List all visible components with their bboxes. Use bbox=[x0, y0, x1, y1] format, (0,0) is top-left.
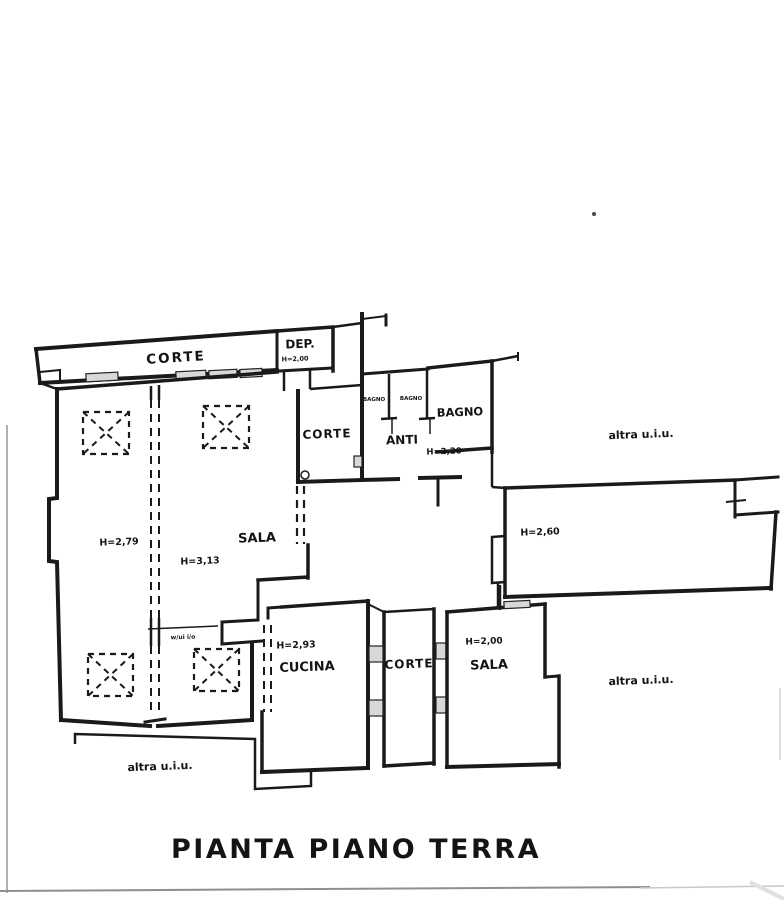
wall-segment bbox=[279, 368, 333, 371]
wall-steps bbox=[222, 580, 262, 644]
wall-segment bbox=[428, 361, 492, 368]
x-box-diagonals bbox=[203, 406, 249, 448]
partition-dashed bbox=[151, 646, 159, 716]
wall-segment bbox=[771, 512, 776, 589]
wall-segment bbox=[362, 369, 428, 374]
door-tick bbox=[726, 500, 746, 502]
notch-walls bbox=[735, 480, 778, 517]
anti-bagno-block: BAGNO BAGNO BAGNO ANTI H=2,20 bbox=[362, 334, 518, 505]
wall-segment bbox=[505, 588, 771, 597]
wall-segment bbox=[49, 389, 61, 720]
room-label-cucina: CUCINA bbox=[279, 659, 335, 676]
drain-symbol bbox=[301, 471, 309, 479]
room-label-corte-bottom: CORTE bbox=[384, 656, 434, 672]
x-box-diagonals bbox=[194, 649, 239, 691]
wall-steps bbox=[258, 545, 308, 580]
page-title: PIANTA PIANO TERRA bbox=[171, 834, 541, 865]
opening-dashed bbox=[297, 486, 304, 544]
height-label-right-room: H=2,60 bbox=[520, 526, 560, 538]
wall-segment bbox=[362, 479, 398, 480]
wall-segment bbox=[158, 720, 252, 726]
wall-segment bbox=[333, 323, 362, 327]
wall-segment bbox=[310, 385, 362, 389]
wall-segment bbox=[384, 763, 434, 766]
external-labels: altra u.i.u. altra u.i.u. bbox=[608, 427, 674, 688]
dashed-x-box bbox=[88, 654, 133, 696]
x-box-diagonals bbox=[83, 412, 129, 454]
window bbox=[354, 456, 362, 467]
yard-outline bbox=[75, 734, 311, 789]
scan-edge-bottom bbox=[0, 887, 650, 891]
wall-segment bbox=[368, 604, 384, 612]
wall-segment bbox=[362, 316, 386, 319]
height-label-dep: H=2,00 bbox=[281, 355, 309, 364]
scan-speck bbox=[592, 212, 596, 216]
height-label-sala-main: H=3,13 bbox=[180, 555, 220, 567]
wall-segment bbox=[282, 601, 368, 607]
partition-stub bbox=[151, 385, 159, 400]
room-label-bagno-small-right: BAGNO bbox=[400, 396, 423, 402]
room-label-sala-main: SALA bbox=[238, 530, 276, 546]
wall-segment bbox=[268, 607, 282, 618]
wall-segment bbox=[262, 768, 368, 772]
window bbox=[86, 372, 118, 382]
floorplan-drawing: CORTE DEP. H=2,00 bbox=[0, 0, 784, 900]
room-label-anti: ANTI bbox=[386, 432, 418, 447]
yard-bottom-left: altra u.i.u. bbox=[75, 734, 311, 789]
room-label-corte-mid: CORTE bbox=[302, 426, 352, 442]
x-box-frame bbox=[83, 412, 129, 454]
wall-segment bbox=[545, 676, 559, 677]
window bbox=[369, 646, 383, 662]
wall-segment bbox=[492, 487, 505, 488]
partition-dashed bbox=[151, 400, 159, 618]
wall-segment bbox=[36, 331, 277, 349]
wall-segment bbox=[298, 480, 362, 482]
room-label-corte-top: CORTE bbox=[146, 348, 206, 368]
x-box-frame bbox=[203, 406, 249, 448]
scan-corner-smudge bbox=[750, 882, 784, 899]
x-box-frame bbox=[194, 649, 239, 691]
x-box-frame bbox=[88, 654, 133, 696]
wall-segment bbox=[36, 349, 40, 383]
wall-segment bbox=[384, 609, 434, 612]
external-label-bottom-left: altra u.i.u. bbox=[127, 759, 193, 774]
height-label-cucina: H=2,93 bbox=[276, 639, 316, 651]
dep-room: DEP. H=2,00 bbox=[277, 327, 333, 391]
opening-dashed bbox=[264, 625, 271, 712]
external-label-right-bottom: altra u.i.u. bbox=[608, 673, 674, 688]
dashed-x-box bbox=[203, 406, 249, 448]
wall-segment bbox=[447, 764, 559, 767]
window bbox=[504, 600, 530, 608]
top-wall-stubs bbox=[333, 314, 386, 334]
long-right-room: H=2,60 bbox=[492, 477, 778, 609]
height-label-anti: H=2,20 bbox=[426, 446, 462, 457]
dashed-x-box bbox=[83, 412, 129, 454]
room-label-bagno: BAGNO bbox=[436, 404, 483, 420]
room-label-sala-bottom: SALA bbox=[470, 657, 508, 673]
wall-niche bbox=[492, 536, 505, 583]
height-label-sala-bottom: H=2,00 bbox=[465, 636, 503, 647]
dashed-x-box bbox=[194, 649, 239, 691]
window bbox=[369, 700, 383, 716]
partition-solid bbox=[151, 618, 159, 646]
wall-segment bbox=[735, 477, 778, 480]
x-box-diagonals bbox=[88, 654, 133, 696]
room-label-dep: DEP. bbox=[285, 336, 315, 351]
wall-segment bbox=[61, 720, 150, 726]
partition-foot bbox=[145, 719, 165, 722]
height-label-left-room: H=2,79 bbox=[99, 536, 139, 548]
tiny-annotation: w/ui i/o bbox=[171, 634, 196, 642]
external-label-right-top: altra u.i.u. bbox=[608, 427, 674, 442]
wall-segment bbox=[505, 480, 735, 488]
scan-artifacts bbox=[0, 212, 784, 899]
main-block: w/ui i/o H=2,79 SALA H=3,13 bbox=[49, 372, 308, 726]
wall-segment bbox=[420, 477, 460, 478]
corte-mid-room: CORTE bbox=[298, 385, 362, 482]
room-label-bagno-small-left: BAGNO bbox=[363, 397, 386, 403]
partition-bath-right bbox=[419, 369, 435, 419]
corte-bottom-room: CORTE bbox=[368, 604, 447, 766]
cucina-room: H=2,93 CUCINA bbox=[262, 601, 368, 772]
sala-bottom-room: H=2,00 SALA bbox=[447, 585, 559, 767]
wall-segment bbox=[492, 356, 518, 361]
